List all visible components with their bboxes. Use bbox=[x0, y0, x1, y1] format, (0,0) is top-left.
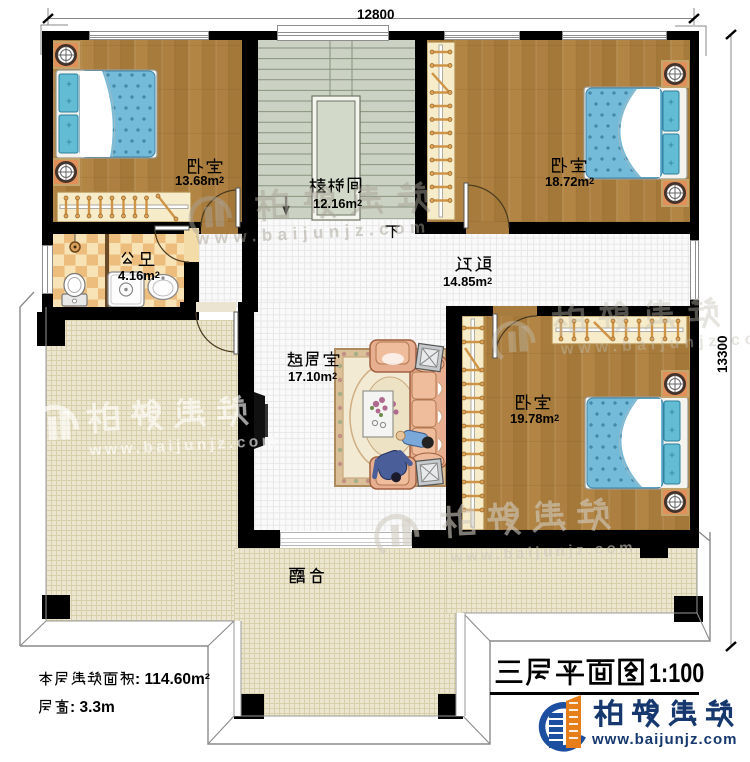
svg-text:13300: 13300 bbox=[715, 335, 730, 373]
